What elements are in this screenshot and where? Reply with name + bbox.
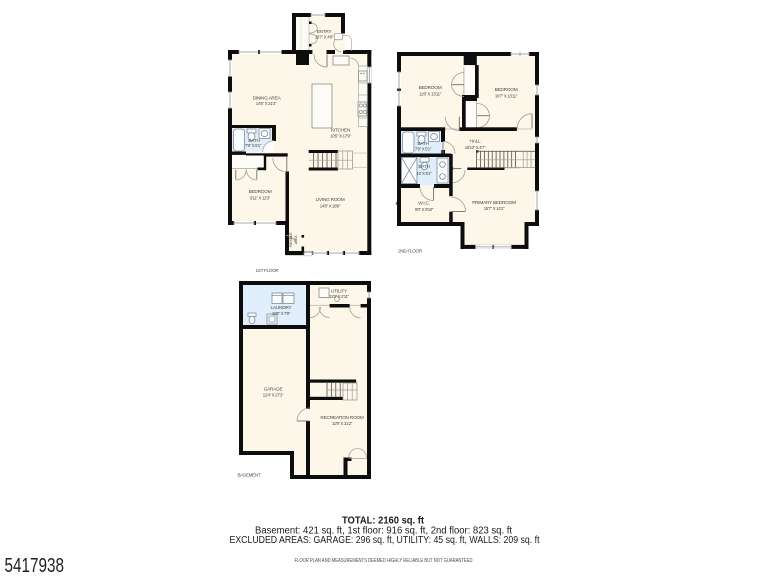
svg-text:BASEMENT: BASEMENT <box>237 473 261 478</box>
svg-text:7'9" X 5'1": 7'9" X 5'1" <box>245 143 262 148</box>
svg-text:16'10" X 4'7": 16'10" X 4'7" <box>465 145 486 150</box>
svg-text:FLOOR PLAN AND MEASUREMENTS DE: FLOOR PLAN AND MEASUREMENTS DEEMED HIGHL… <box>295 558 473 564</box>
svg-text:7'9" X 5'1": 7'9" X 5'1" <box>415 147 432 152</box>
svg-text:15'7" X 14'2": 15'7" X 14'2" <box>484 206 505 211</box>
svg-text:14'6" X 31'4": 14'6" X 31'4" <box>256 101 277 106</box>
svg-text:10' X 5'1": 10' X 5'1" <box>417 171 433 176</box>
svg-text:2ND FLOOR: 2ND FLOOR <box>398 249 423 254</box>
svg-text:9'0" X 8'10": 9'0" X 8'10" <box>415 207 434 212</box>
svg-text:10'5" X 17'9": 10'5" X 17'9" <box>330 133 351 138</box>
svg-text:10'7" X 4'9": 10'7" X 4'9" <box>315 35 334 40</box>
svg-text:HALL: HALL <box>470 139 481 145</box>
svg-text:10'7" X 13'11": 10'7" X 13'11" <box>495 94 518 99</box>
svg-text:BEDROOM: BEDROOM <box>495 87 518 93</box>
svg-text:1ST FLOOR: 1ST FLOOR <box>256 268 280 273</box>
svg-text:11'9" X 2'11": 11'9" X 2'11" <box>329 294 350 299</box>
svg-text:12'4" X 27'3": 12'4" X 27'3" <box>263 393 284 398</box>
svg-text:11'9" X 31'2": 11'9" X 31'2" <box>332 421 353 426</box>
svg-text:BEDROOM: BEDROOM <box>249 189 272 195</box>
svg-text:AREA: AREA <box>294 235 298 244</box>
svg-text:BEDROOM: BEDROOM <box>419 85 442 91</box>
svg-text:5417938: 5417938 <box>5 554 65 576</box>
svg-text:EXCLUDED AREAS: GARAGE: 296 sq: EXCLUDED AREAS: GARAGE: 296 sq. ft, UTIL… <box>230 535 540 546</box>
svg-text:LIVING ROOM: LIVING ROOM <box>316 197 345 203</box>
svg-text:W.I.C.: W.I.C. <box>418 201 429 207</box>
svg-text:14'8" X 18'9": 14'8" X 18'9" <box>320 204 341 209</box>
svg-text:BATH: BATH <box>418 164 430 170</box>
svg-text:11'6" X 13'11": 11'6" X 13'11" <box>419 92 442 97</box>
svg-text:11'5" X 7'9": 11'5" X 7'9" <box>272 311 291 316</box>
svg-text:9'11" X 12'3": 9'11" X 12'3" <box>250 196 271 201</box>
svg-text:FLEXIBLE: FLEXIBLE <box>289 232 293 247</box>
